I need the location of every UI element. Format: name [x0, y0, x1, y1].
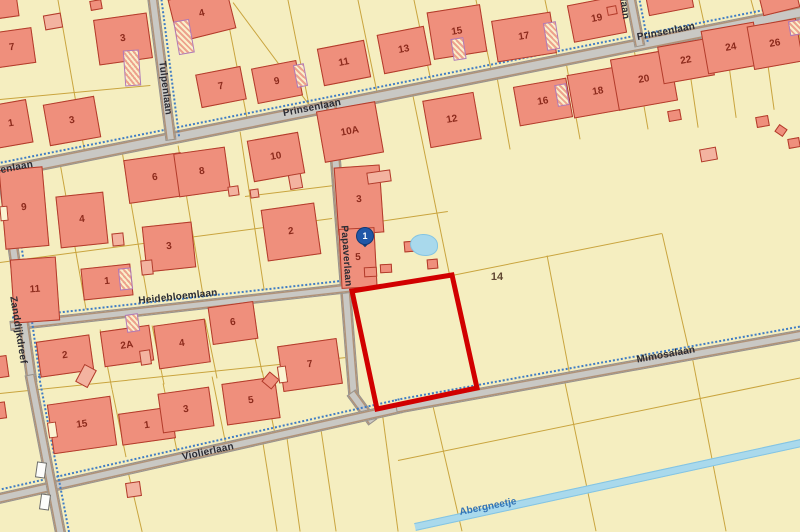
house-number: 5: [355, 253, 361, 263]
house: 3: [157, 387, 214, 434]
shed: [380, 264, 392, 274]
pond: [410, 234, 438, 256]
house: 7: [277, 338, 343, 392]
house: 4: [55, 192, 108, 249]
shed: [227, 185, 239, 196]
house-number: 10: [270, 151, 283, 163]
house-number: 9: [273, 77, 280, 88]
shed: [606, 5, 618, 16]
house-number: 3: [68, 116, 75, 127]
house-number: 5: [248, 396, 255, 407]
house-number: 4: [198, 8, 206, 19]
house-number: 2A: [120, 340, 134, 352]
house-number: 19: [591, 13, 604, 25]
house-number: 3: [166, 242, 173, 253]
shed: [43, 13, 63, 31]
map-marker[interactable]: 1: [356, 227, 374, 245]
shed: [787, 137, 800, 149]
house-number: 1: [104, 277, 111, 288]
house-number: 2: [288, 227, 295, 238]
house-number: 22: [680, 55, 693, 67]
marker-number: 1: [362, 231, 367, 241]
house-number: 24: [725, 42, 738, 54]
house-number: 15: [451, 26, 464, 38]
house-number: 13: [398, 44, 411, 56]
hatched-annex: [125, 313, 140, 333]
map-canvas[interactable]: 73479111315171910A1216182022242613946831…: [0, 0, 800, 532]
parcel-number-label: 14: [491, 271, 503, 283]
house-number: 4: [79, 215, 86, 226]
shed: [427, 259, 439, 270]
house-number: 20: [638, 74, 651, 86]
house-number: 2: [62, 351, 69, 362]
shed: [288, 173, 303, 190]
house: 8: [173, 147, 231, 198]
house-number: 4: [179, 339, 186, 350]
house-number: 12: [446, 114, 459, 126]
house-number: 9: [21, 203, 27, 213]
shed: [111, 232, 124, 246]
shed: [755, 115, 770, 128]
house-number: 3: [183, 405, 190, 416]
house-number: 7: [9, 43, 16, 54]
hatched-annex: [118, 267, 133, 290]
house-number: 17: [518, 31, 531, 43]
house: 12: [422, 92, 482, 148]
house: 3: [43, 96, 102, 146]
house: 6: [208, 301, 259, 345]
house-number: 6: [152, 173, 159, 184]
street-name-label: Violierlaan: [181, 441, 235, 463]
house-number: 7: [217, 82, 224, 93]
house: 4: [153, 319, 211, 370]
hatched-annex: [788, 19, 800, 36]
house-number: 1: [7, 119, 14, 130]
shed: [667, 109, 682, 122]
house-number: 10A: [340, 125, 360, 138]
house-number: 15: [76, 419, 88, 430]
house-number: 16: [537, 96, 550, 108]
house-number: 8: [199, 167, 206, 178]
hatched-annex: [123, 49, 141, 86]
house: 2: [261, 202, 322, 261]
outbuilding-white: [0, 206, 9, 222]
house: 15: [47, 396, 117, 454]
house-number: 11: [29, 285, 40, 296]
shed: [140, 259, 154, 275]
shed: [249, 188, 259, 198]
house-number: 26: [769, 38, 782, 50]
shed: [139, 349, 152, 365]
shed: [125, 481, 142, 498]
house-number: 1: [144, 421, 151, 432]
house-number: 3: [356, 195, 362, 205]
house-number: 7: [307, 360, 314, 371]
house: 7: [0, 27, 36, 69]
house-number: 6: [230, 318, 237, 329]
house-number: 18: [592, 86, 605, 98]
house-number: 11: [338, 57, 350, 69]
shed: [364, 267, 378, 278]
house-number: 3: [120, 34, 127, 45]
